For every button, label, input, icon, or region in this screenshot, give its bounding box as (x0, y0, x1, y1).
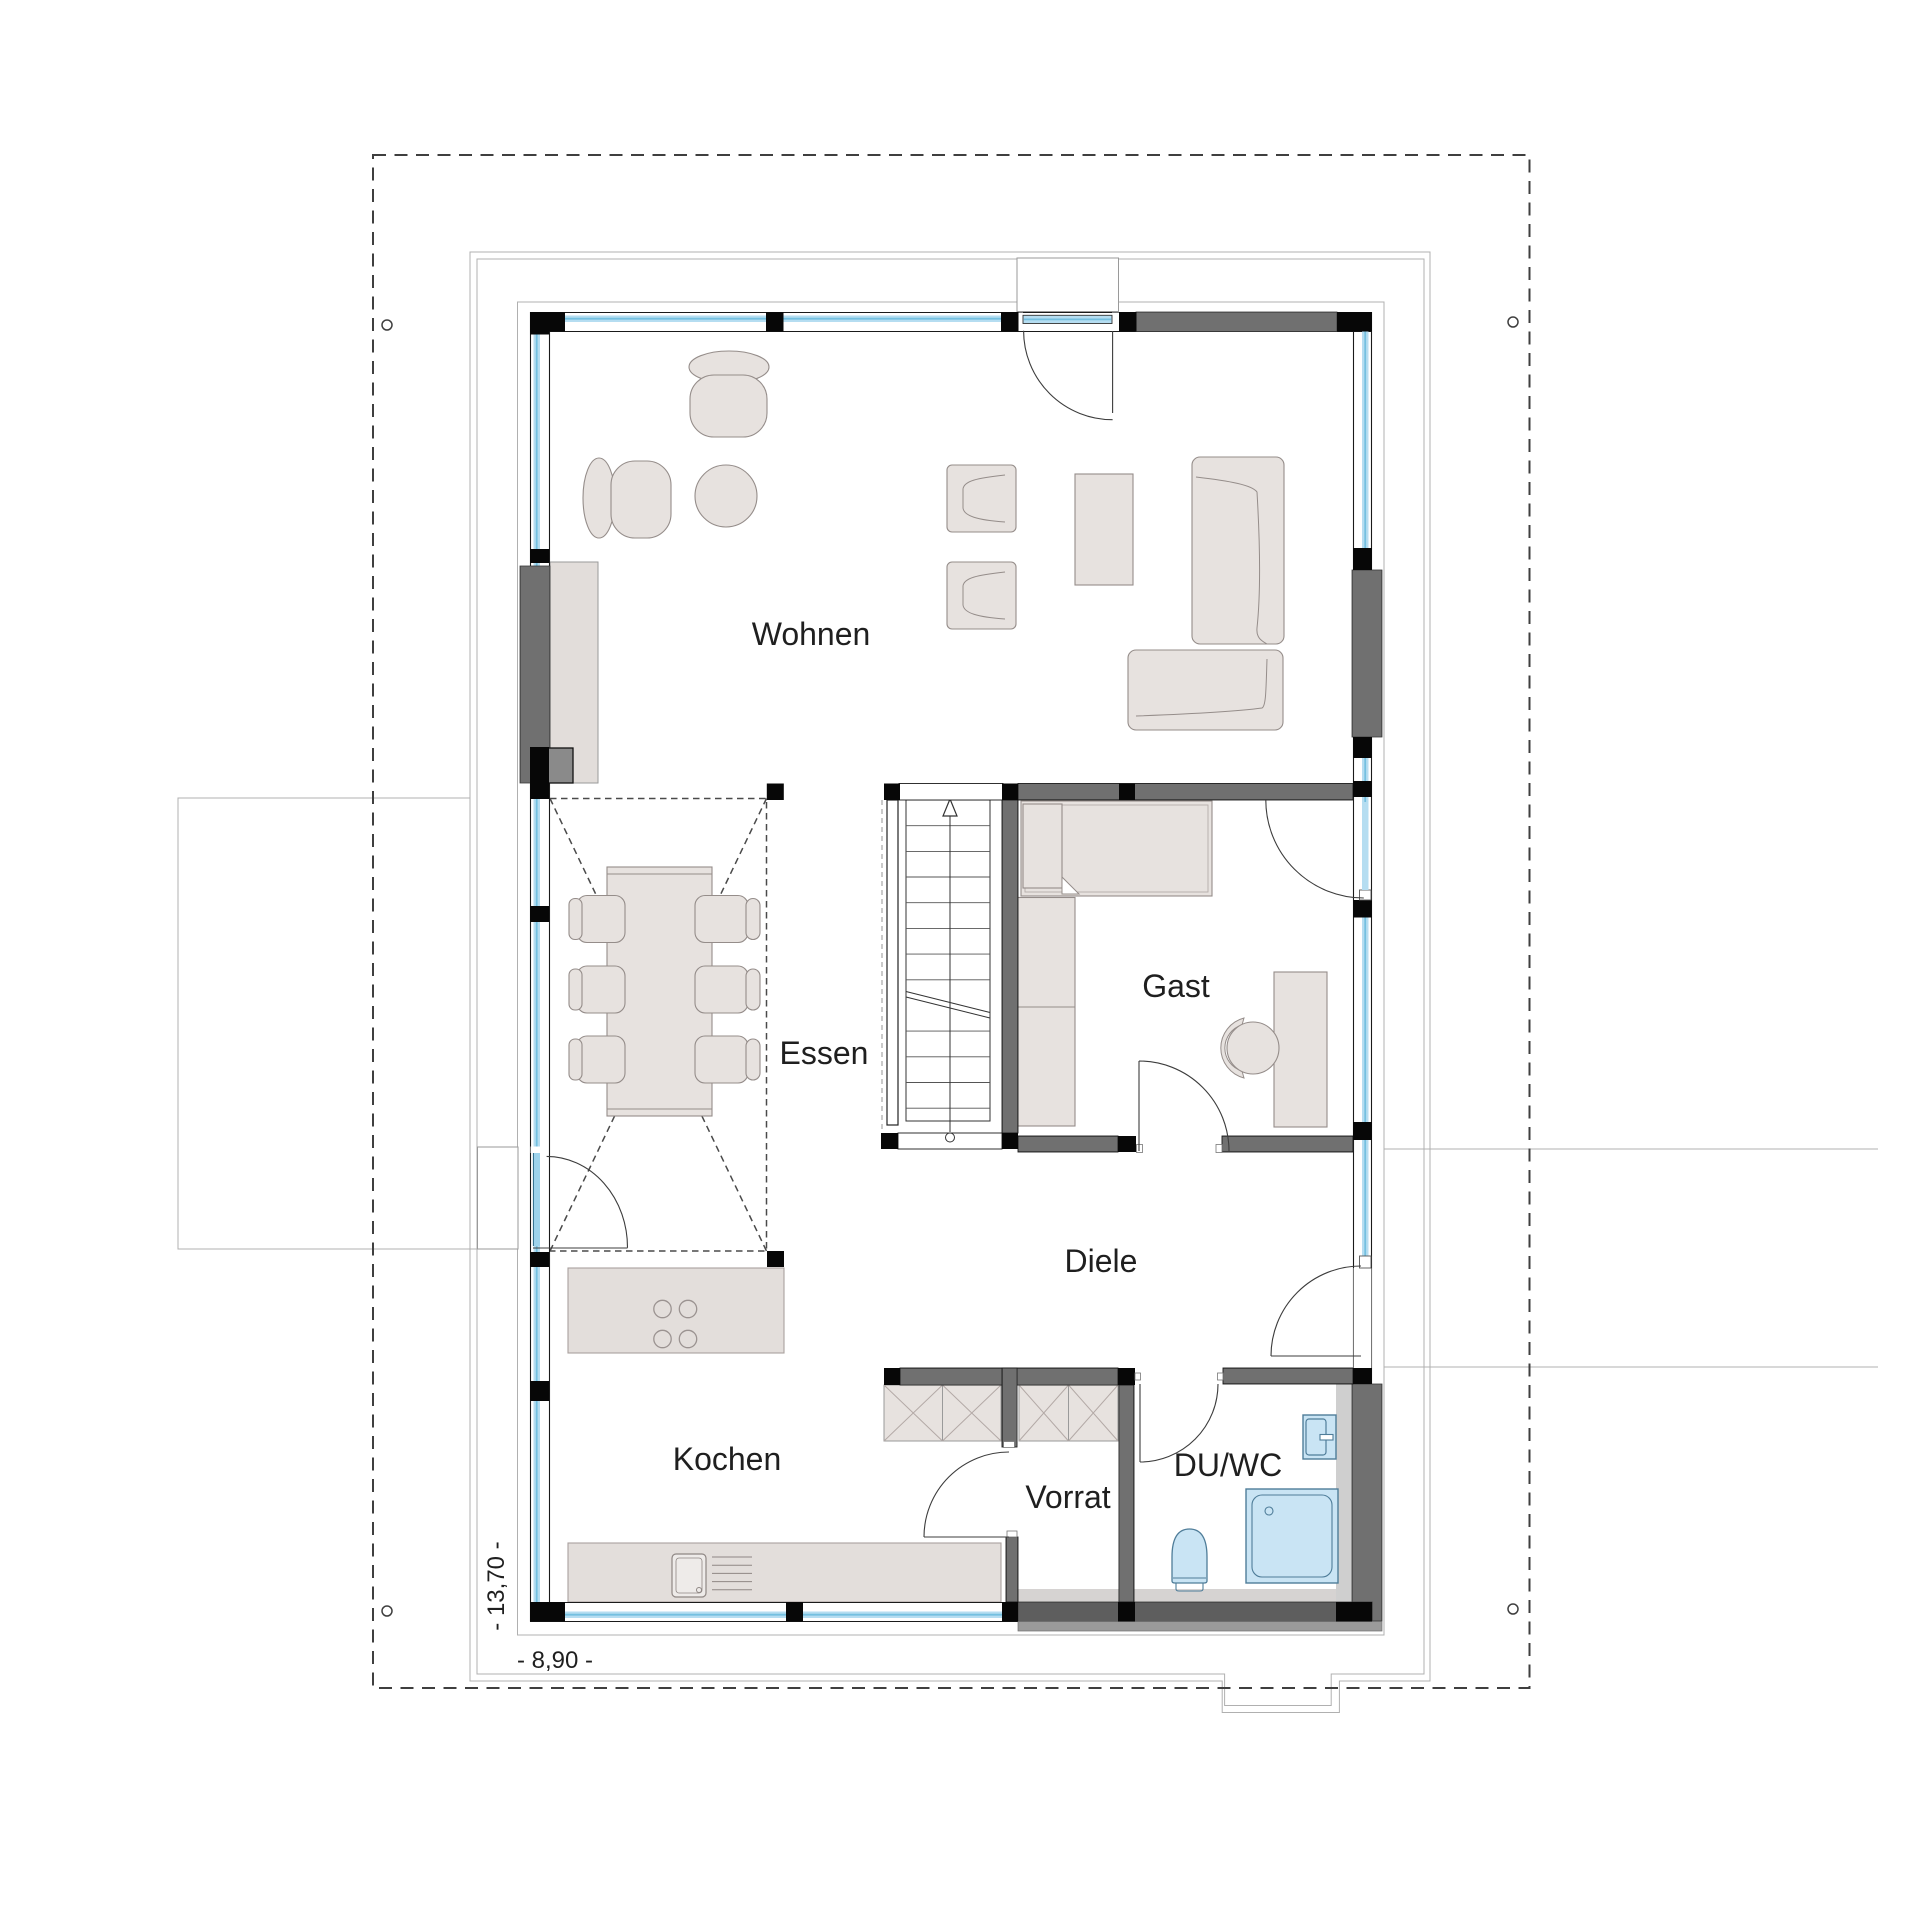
svg-text:Kochen: Kochen (673, 1441, 782, 1477)
svg-text:DU/WC: DU/WC (1174, 1447, 1282, 1483)
svg-text:Gast: Gast (1142, 968, 1210, 1004)
svg-text:Wohnen: Wohnen (752, 616, 871, 652)
svg-text:Diele: Diele (1065, 1243, 1138, 1279)
svg-text:- 13,70 -: - 13,70 - (483, 1541, 510, 1630)
svg-text:Vorrat: Vorrat (1025, 1479, 1110, 1515)
svg-text:- 8,90 -: - 8,90 - (517, 1647, 593, 1674)
svg-text:Essen: Essen (780, 1035, 869, 1071)
